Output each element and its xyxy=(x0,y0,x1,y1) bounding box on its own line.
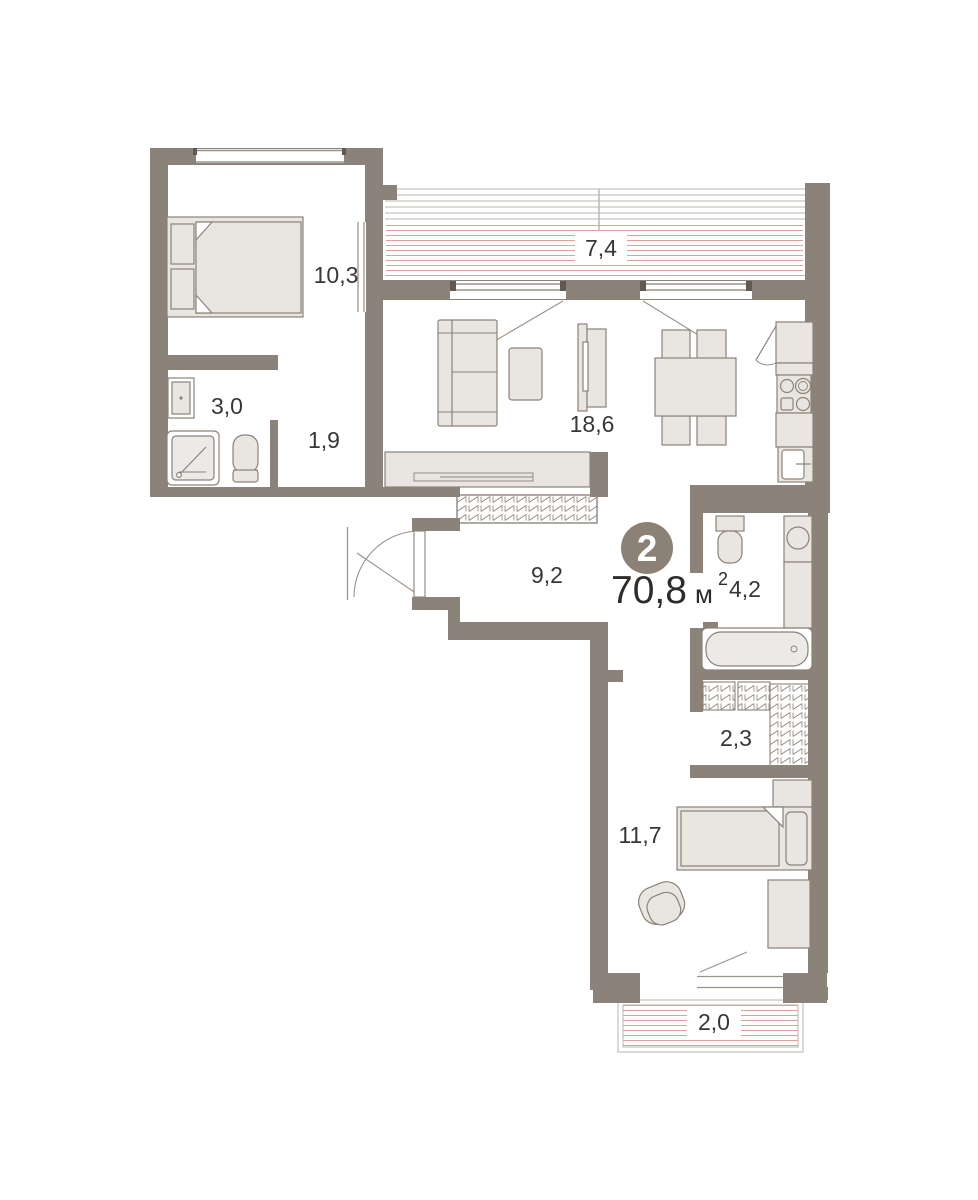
armchair xyxy=(634,877,690,931)
room-area-label: 4,2 xyxy=(729,576,761,602)
hallway-furniture xyxy=(385,452,597,523)
total-area-value: 70,8 xyxy=(611,569,687,612)
stove xyxy=(777,375,811,413)
rooms-count: 2 xyxy=(637,528,658,569)
room-area-label: 18,6 xyxy=(570,411,615,437)
room-area-label: 10,3 xyxy=(314,262,359,288)
floor-plan: 10,3 7,4 3,0 1,9 18,6 9,2 4,2 2,3 11,7 2… xyxy=(0,0,978,1200)
room-area-label: 2,3 xyxy=(720,725,752,751)
blanket xyxy=(681,811,779,866)
total-area-sup: 2 xyxy=(718,569,728,589)
window-bedroom2-balcony xyxy=(697,952,783,990)
room-area-label: 7,4 xyxy=(585,235,617,261)
pillow xyxy=(171,224,194,264)
window-bedroom-top xyxy=(193,148,346,163)
single-bed xyxy=(677,807,812,870)
shower xyxy=(167,431,219,485)
floorplan-page: 10,3 7,4 3,0 1,9 18,6 9,2 4,2 2,3 11,7 2… xyxy=(0,0,978,1200)
fridge xyxy=(756,322,813,365)
apartment-summary: 2 70,8 м 2 xyxy=(611,522,728,612)
wardrobe xyxy=(703,682,735,710)
kitchen-sink xyxy=(778,447,813,482)
toilet xyxy=(716,516,744,563)
room-area-label: 9,2 xyxy=(531,562,563,588)
bathtub xyxy=(702,628,812,670)
dining-table xyxy=(655,330,736,445)
coffee-table xyxy=(509,348,542,400)
wardrobe xyxy=(738,682,770,710)
desk xyxy=(768,880,810,948)
wardrobe xyxy=(457,495,597,523)
double-bed xyxy=(167,217,303,317)
bath-counter xyxy=(784,562,812,628)
blanket xyxy=(196,222,301,313)
bedroom-main-furniture xyxy=(167,217,303,317)
bedroom-second-furniture xyxy=(634,780,812,948)
nightstand xyxy=(773,780,812,807)
toilet xyxy=(233,435,258,482)
washbasin xyxy=(168,378,194,418)
sofa xyxy=(438,320,497,426)
loggia-top xyxy=(385,189,805,276)
pillow xyxy=(786,812,807,865)
entrance-door xyxy=(348,527,426,600)
room-area-label: 11,7 xyxy=(618,822,661,848)
room-area-label: 1,9 xyxy=(308,427,340,453)
pillow xyxy=(171,269,194,309)
window-living-right xyxy=(640,281,752,349)
tv-stand xyxy=(578,324,606,411)
kitchen-counter xyxy=(776,363,813,375)
total-area-unit: м xyxy=(695,579,713,609)
room-area-label: 2,0 xyxy=(698,1009,730,1035)
washbasin xyxy=(784,516,812,562)
console-shelf xyxy=(385,452,590,487)
kitchen-counter xyxy=(776,413,813,447)
room-area-label: 3,0 xyxy=(211,393,243,419)
wardrobe xyxy=(770,684,812,768)
